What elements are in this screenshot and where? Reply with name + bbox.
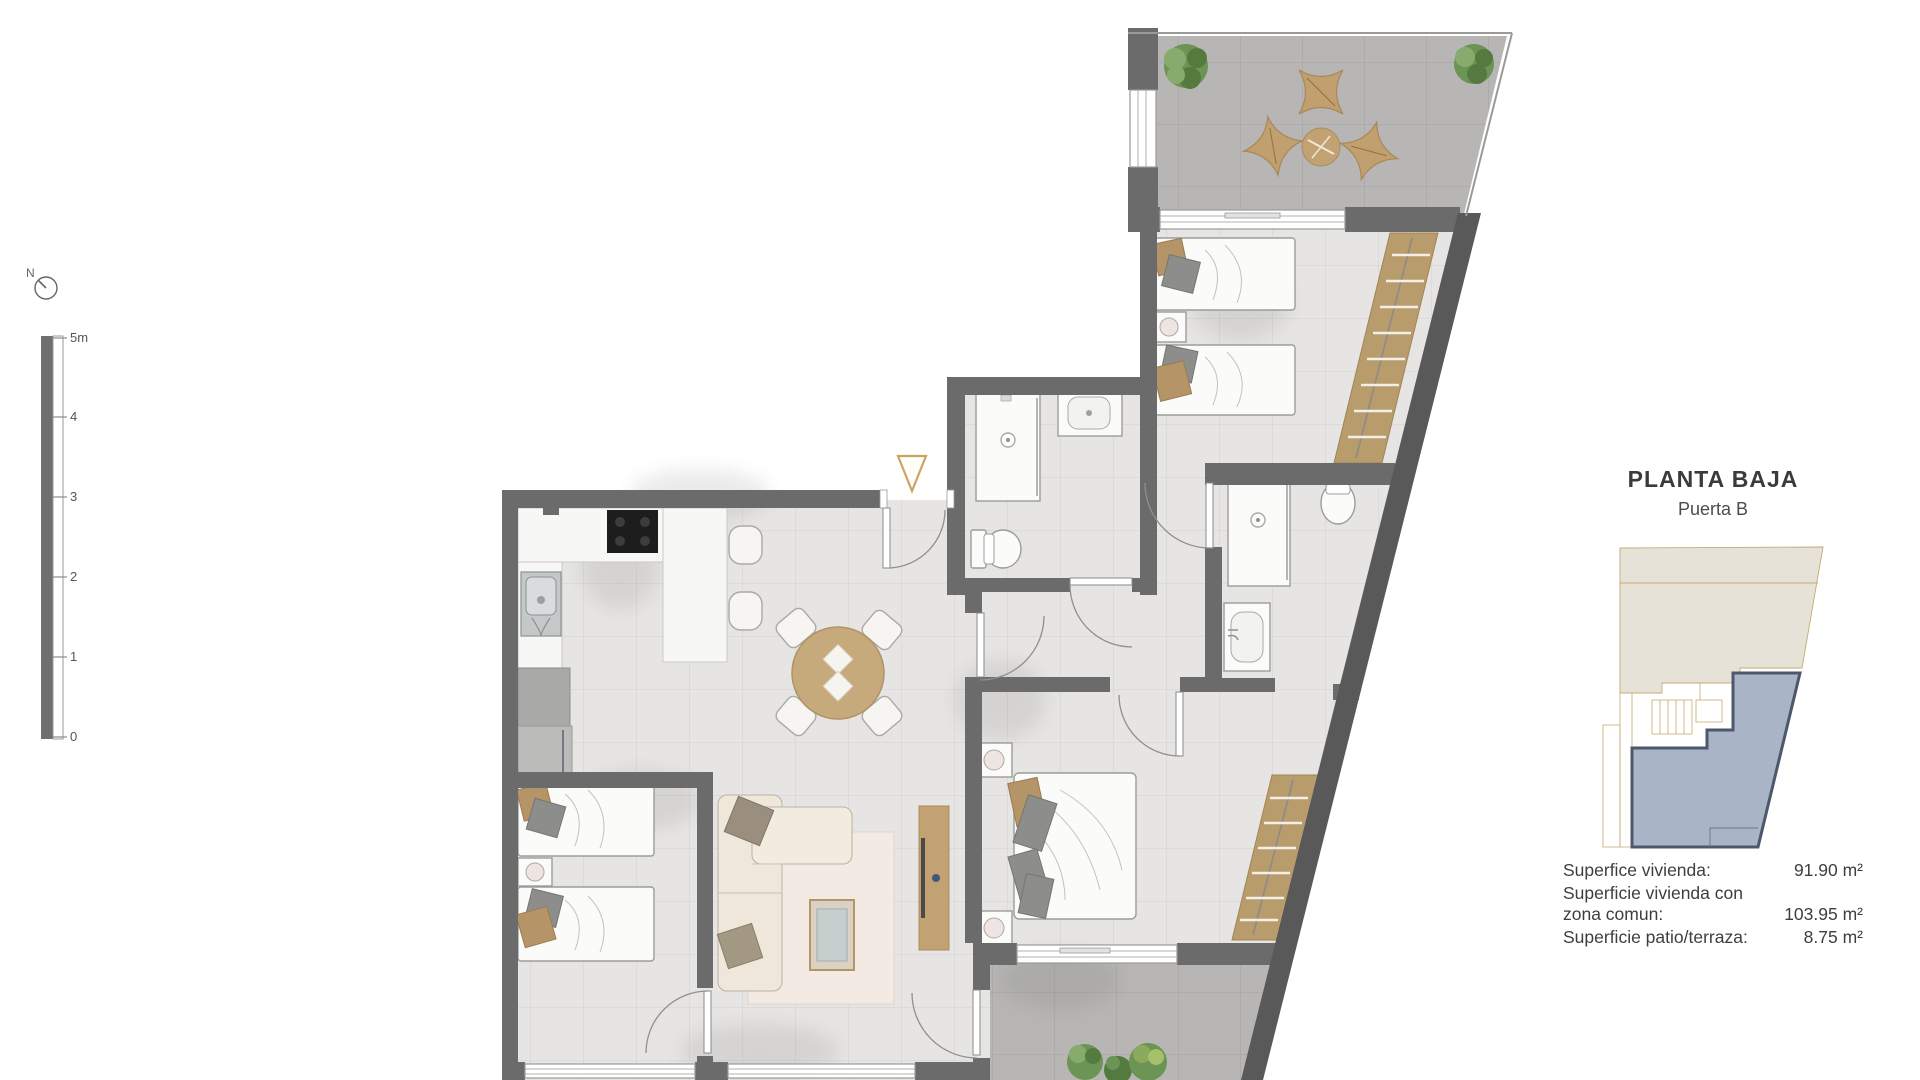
key-plan (1592, 538, 1832, 858)
washbasin (1224, 603, 1270, 671)
area-row: Superficie patio/terraza: 8.75 m² (1563, 927, 1863, 948)
terrace-bush-right (1454, 44, 1494, 84)
scale-label: 4 (70, 409, 77, 424)
scale-label: 0 (70, 729, 77, 744)
area-label: Superficie vivienda con zona comun: (1563, 883, 1768, 925)
kitchen-sink (521, 572, 561, 636)
key-plan-unit-highlight (1632, 673, 1800, 847)
page-subtitle: Puerta B (1592, 499, 1834, 520)
page: { "header": { "title": "PLANTA BAJA", "s… (0, 0, 1920, 1080)
area-label: Superfice vivienda: (1563, 860, 1711, 881)
area-row: Superficie vivienda con zona comun: 103.… (1563, 883, 1863, 925)
cooktop (607, 510, 658, 553)
terrace-table (1302, 128, 1340, 166)
window (525, 1064, 695, 1078)
shower (976, 393, 1040, 501)
entrance-marker-icon (898, 456, 926, 491)
title-block: PLANTA BAJA Puerta B (1592, 466, 1834, 520)
coffee-table (810, 900, 854, 970)
toilet (971, 530, 1021, 568)
key-plan-neighbor-area (1620, 547, 1823, 693)
area-value: 8.75 m² (1804, 927, 1863, 948)
window (1160, 210, 1345, 229)
area-table: Superfice vivienda: 91.90 m² Superficie … (1563, 860, 1863, 950)
fridge (518, 668, 570, 726)
kitchen-island (663, 508, 727, 662)
compass: N (24, 266, 74, 306)
window (1017, 945, 1177, 963)
window (728, 1064, 915, 1078)
area-value: 103.95 m² (1784, 904, 1863, 925)
nightstand (518, 858, 552, 886)
area-value: 91.90 m² (1794, 860, 1863, 881)
bar-stool (729, 526, 762, 564)
nightstand (1152, 312, 1186, 342)
scale-label: 3 (70, 489, 77, 504)
washbasin (1058, 390, 1122, 436)
scale-label: 2 (70, 569, 77, 584)
area-label: Superficie patio/terraza: (1563, 927, 1748, 948)
scale-label: 1 (70, 649, 77, 664)
compass-north-label: N (26, 266, 35, 280)
tv-unit (919, 806, 949, 950)
terrace-chair (1299, 70, 1343, 114)
scale-label: 5m (70, 330, 88, 345)
window (1130, 90, 1156, 167)
area-row: Superfice vivienda: 91.90 m² (1563, 860, 1863, 881)
bar-stool (729, 592, 762, 630)
shower (1228, 470, 1290, 586)
page-title: PLANTA BAJA (1592, 466, 1834, 493)
scale-bar (30, 330, 110, 750)
